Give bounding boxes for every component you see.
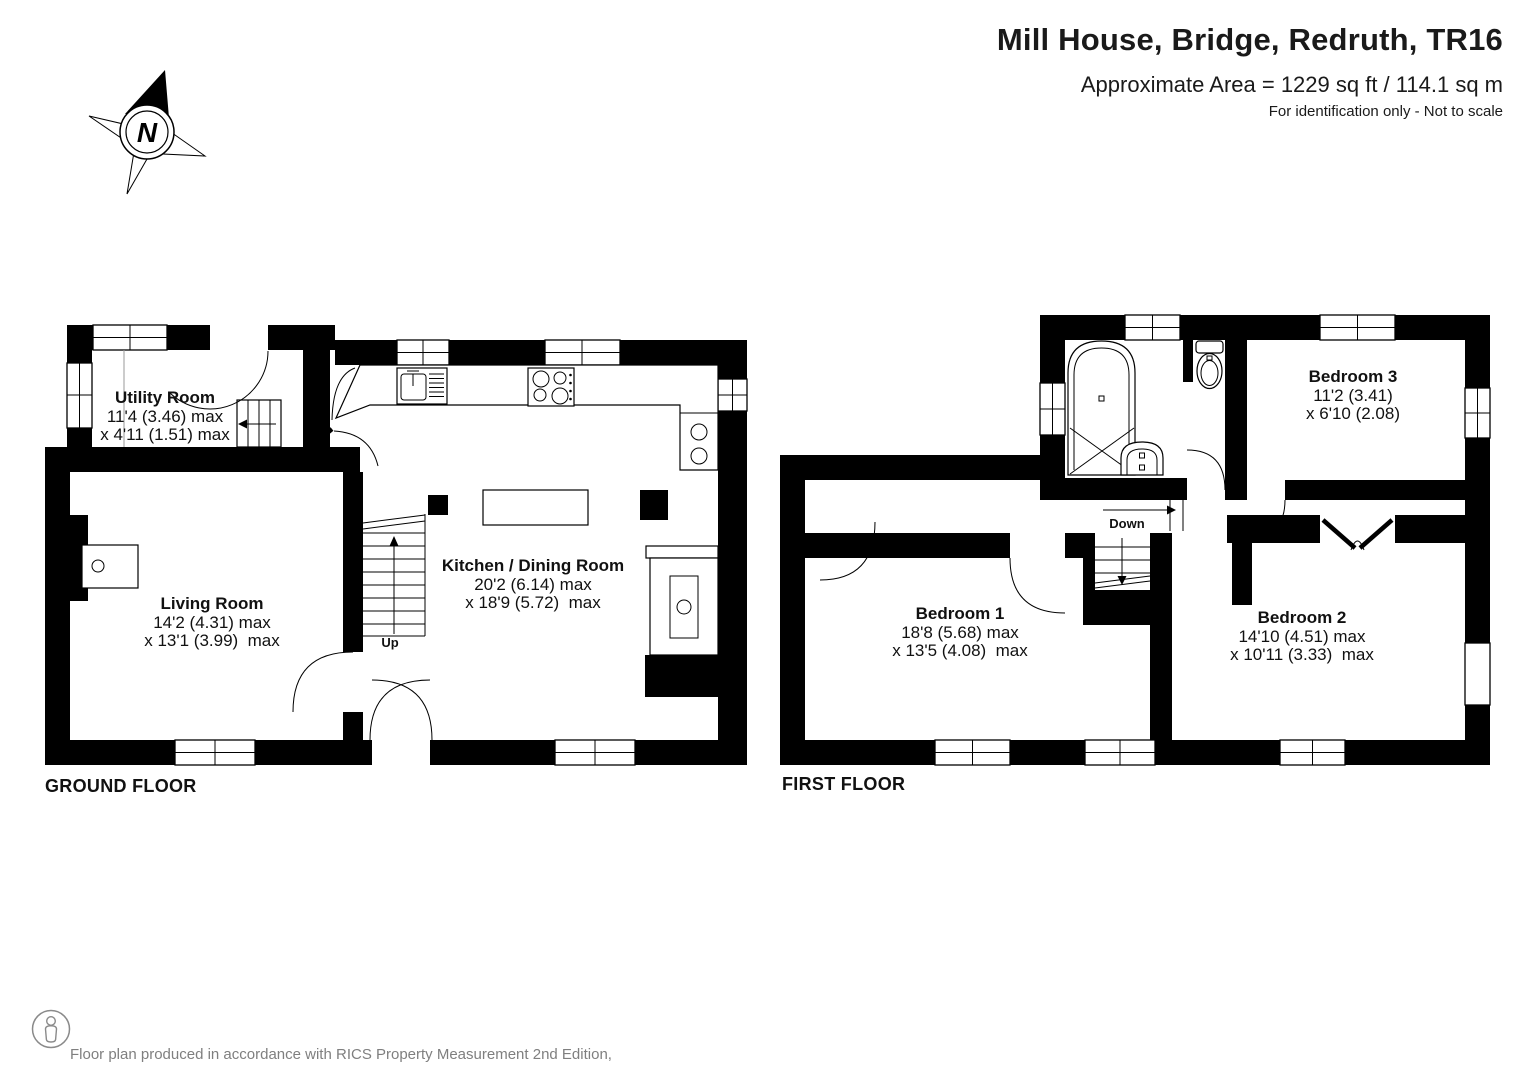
toilet-icon [1196,341,1223,389]
room-dim: 18'8 (5.68) max [860,624,1060,643]
room-label-bedroom2: Bedroom 2 14'10 (4.51) max x 10'11 (3.33… [1192,609,1412,665]
room-dim: x 4'11 (1.51) max [65,426,265,445]
first-floor-title: FIRST FLOOR [782,774,905,795]
room-name: Bedroom 1 [860,605,1060,624]
page-title: Mill House, Bridge, Redruth, TR16 [997,22,1503,58]
floorplan-page: Mill House, Bridge, Redruth, TR16 Approx… [0,0,1527,1080]
room-name: Bedroom 3 [1253,368,1453,387]
kitchen-island [483,490,588,525]
room-dim: 20'2 (6.14) max [408,576,658,595]
kitchen-counter [336,365,718,470]
room-dim: x 18'9 (5.72) max [408,594,658,613]
room-dim: x 6'10 (2.08) [1253,405,1453,424]
compass-north-label: N [137,117,158,148]
hob-icon [528,368,574,406]
sink-icon [397,368,447,404]
approximate-area: Approximate Area = 1229 sq ft / 114.1 sq… [1081,72,1503,98]
fireplace-icon [82,545,138,588]
footer-line1: Floor plan produced in accordance with R… [70,1045,750,1065]
compass-icon: N [85,66,217,202]
room-name: Bedroom 2 [1192,609,1412,628]
person-icon [30,1008,72,1050]
ground-floor-plan [40,318,770,770]
room-dim: 14'10 (4.51) max [1192,628,1412,647]
room-dim: 11'2 (3.41) [1253,387,1453,406]
room-name: Living Room [112,595,312,614]
room-label-kitchen: Kitchen / Dining Room 20'2 (6.14) max x … [408,557,658,613]
ground-floor-title: GROUND FLOOR [45,776,197,797]
room-label-bedroom1: Bedroom 1 18'8 (5.68) max x 13'5 (4.08) … [860,605,1060,661]
room-name: Utility Room [65,389,265,408]
stairs-down-label: Down [1097,516,1157,531]
room-label-utility: Utility Room 11'4 (3.46) max x 4'11 (1.5… [65,389,265,445]
room-dim: 11'4 (3.46) max [65,408,265,427]
room-name: Kitchen / Dining Room [408,557,658,576]
room-dim: x 13'5 (4.08) max [860,642,1060,661]
room-label-bedroom3: Bedroom 3 11'2 (3.41) x 6'10 (2.08) [1253,368,1453,424]
room-dim: x 10'11 (3.33) max [1192,646,1412,665]
room-dim: x 13'1 (3.99) max [112,632,312,651]
footer-disclaimer: Floor plan produced in accordance with R… [70,1006,750,1080]
disclaimer: For identification only - Not to scale [1269,103,1503,120]
stairs-up-label: Up [365,635,415,650]
room-dim: 14'2 (4.31) max [112,614,312,633]
basin-icon [1121,442,1163,475]
room-label-living: Living Room 14'2 (4.31) max x 13'1 (3.99… [112,595,312,651]
